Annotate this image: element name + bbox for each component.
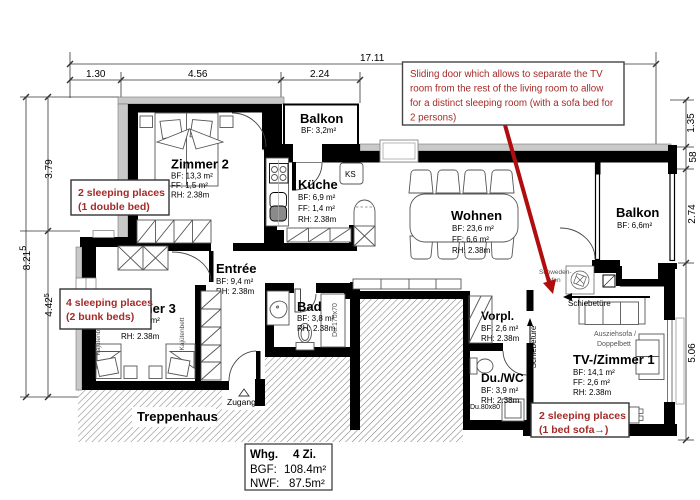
svg-text:2.24: 2.24 (310, 69, 330, 80)
svg-text:Treppenhaus: Treppenhaus (137, 409, 218, 424)
svg-text:BF: 3,9 m²: BF: 3,9 m² (481, 386, 519, 395)
svg-text:BF: 9,4 m²: BF: 9,4 m² (216, 277, 254, 286)
svg-text:RH: 2.38m: RH: 2.38m (121, 332, 160, 341)
svg-text:FF: 1,4 m²: FF: 1,4 m² (298, 204, 335, 213)
svg-text:Entrée: Entrée (216, 261, 256, 276)
svg-text:Bad: Bad (297, 299, 322, 314)
svg-text:BF: 14,1 m²: BF: 14,1 m² (573, 368, 615, 377)
svg-text:RH: 2.38m: RH: 2.38m (452, 246, 491, 255)
svg-text:BF: 13,3 m²: BF: 13,3 m² (171, 172, 213, 181)
svg-text:for a distinct sleeping room (: for a distinct sleeping room (with a sof… (410, 98, 614, 109)
svg-text:Küche: Küche (298, 177, 338, 192)
svg-text:FF: 6,6 m²: FF: 6,6 m² (452, 235, 489, 244)
svg-text:3.79: 3.79 (44, 159, 55, 179)
svg-text:Vorpl.: Vorpl. (481, 309, 514, 323)
svg-text:Balkon: Balkon (300, 111, 343, 126)
svg-text:58: 58 (688, 151, 699, 163)
svg-text:RH: 2.38m: RH: 2.38m (481, 334, 520, 343)
svg-text:Zugang: Zugang (227, 397, 256, 407)
svg-text:Balkon: Balkon (616, 205, 659, 220)
svg-text:(1 double bed): (1 double bed) (78, 201, 150, 213)
svg-text:Zimmer 2: Zimmer 2 (171, 157, 229, 172)
svg-text:BF: 6,6m²: BF: 6,6m² (617, 221, 652, 230)
svg-text:RH: 2.38m: RH: 2.38m (573, 388, 612, 397)
svg-text:KS: KS (345, 170, 356, 179)
svg-text:BGF:108.4m²: BGF:108.4m² (250, 464, 326, 476)
svg-text:BF: 6,9 m²: BF: 6,9 m² (298, 193, 336, 202)
svg-text:RH: 2.38m: RH: 2.38m (298, 215, 337, 224)
svg-text:Du.80x80: Du.80x80 (470, 404, 500, 411)
svg-text:1.30: 1.30 (86, 69, 106, 80)
svg-text:BF: 23,6 m²: BF: 23,6 m² (452, 224, 494, 233)
svg-text:5.06: 5.06 (687, 343, 698, 363)
svg-text:1.35: 1.35 (686, 113, 697, 133)
svg-text:17.11: 17.11 (360, 53, 385, 64)
svg-text:2 persons): 2 persons) (410, 113, 456, 124)
svg-text:(1 bed sofa→): (1 bed sofa→) (539, 424, 608, 436)
svg-text:RH: 2.38m: RH: 2.38m (171, 191, 210, 200)
svg-text:Doppelbett: Doppelbett (597, 341, 631, 348)
svg-text:RH: 2.38m: RH: 2.38m (297, 324, 336, 333)
svg-text:FF: 2,6 m²: FF: 2,6 m² (573, 378, 610, 387)
svg-text:Schiebetüre: Schiebetüre (529, 325, 538, 368)
svg-text:FF: 1,5 m²: FF: 1,5 m² (171, 181, 208, 190)
svg-text:Kajütenbett: Kajütenbett (179, 317, 186, 350)
svg-text:RH: 2.38m: RH: 2.38m (216, 287, 255, 296)
svg-text:2 sleeping places: 2 sleeping places (78, 187, 165, 199)
svg-text:Schiebetüre: Schiebetüre (568, 299, 611, 308)
svg-text:TV-/Zimmer 1: TV-/Zimmer 1 (573, 352, 655, 367)
svg-text:Wohnen: Wohnen (451, 208, 502, 223)
svg-text:BF: 2,6 m²: BF: 2,6 m² (481, 324, 519, 333)
svg-text:Du./WC: Du./WC (481, 371, 524, 385)
svg-text:(2 bunk beds): (2 bunk beds) (66, 311, 134, 323)
svg-text:room from the rest of the livi: room from the rest of the living room to… (410, 84, 604, 95)
svg-text:BF: 3,2m²: BF: 3,2m² (301, 126, 336, 135)
svg-text:4.56: 4.56 (188, 69, 208, 80)
svg-text:Sliding door which allows to s: Sliding door which allows to separate th… (410, 69, 603, 80)
svg-text:BF: 3,8 m²: BF: 3,8 m² (297, 314, 335, 323)
svg-text:2 sleeping places: 2 sleeping places (539, 410, 626, 422)
svg-text:2.74: 2.74 (687, 204, 698, 224)
svg-text:4 sleeping places: 4 sleeping places (66, 297, 153, 309)
svg-text:Ausziehsofa /: Ausziehsofa / (594, 331, 636, 338)
